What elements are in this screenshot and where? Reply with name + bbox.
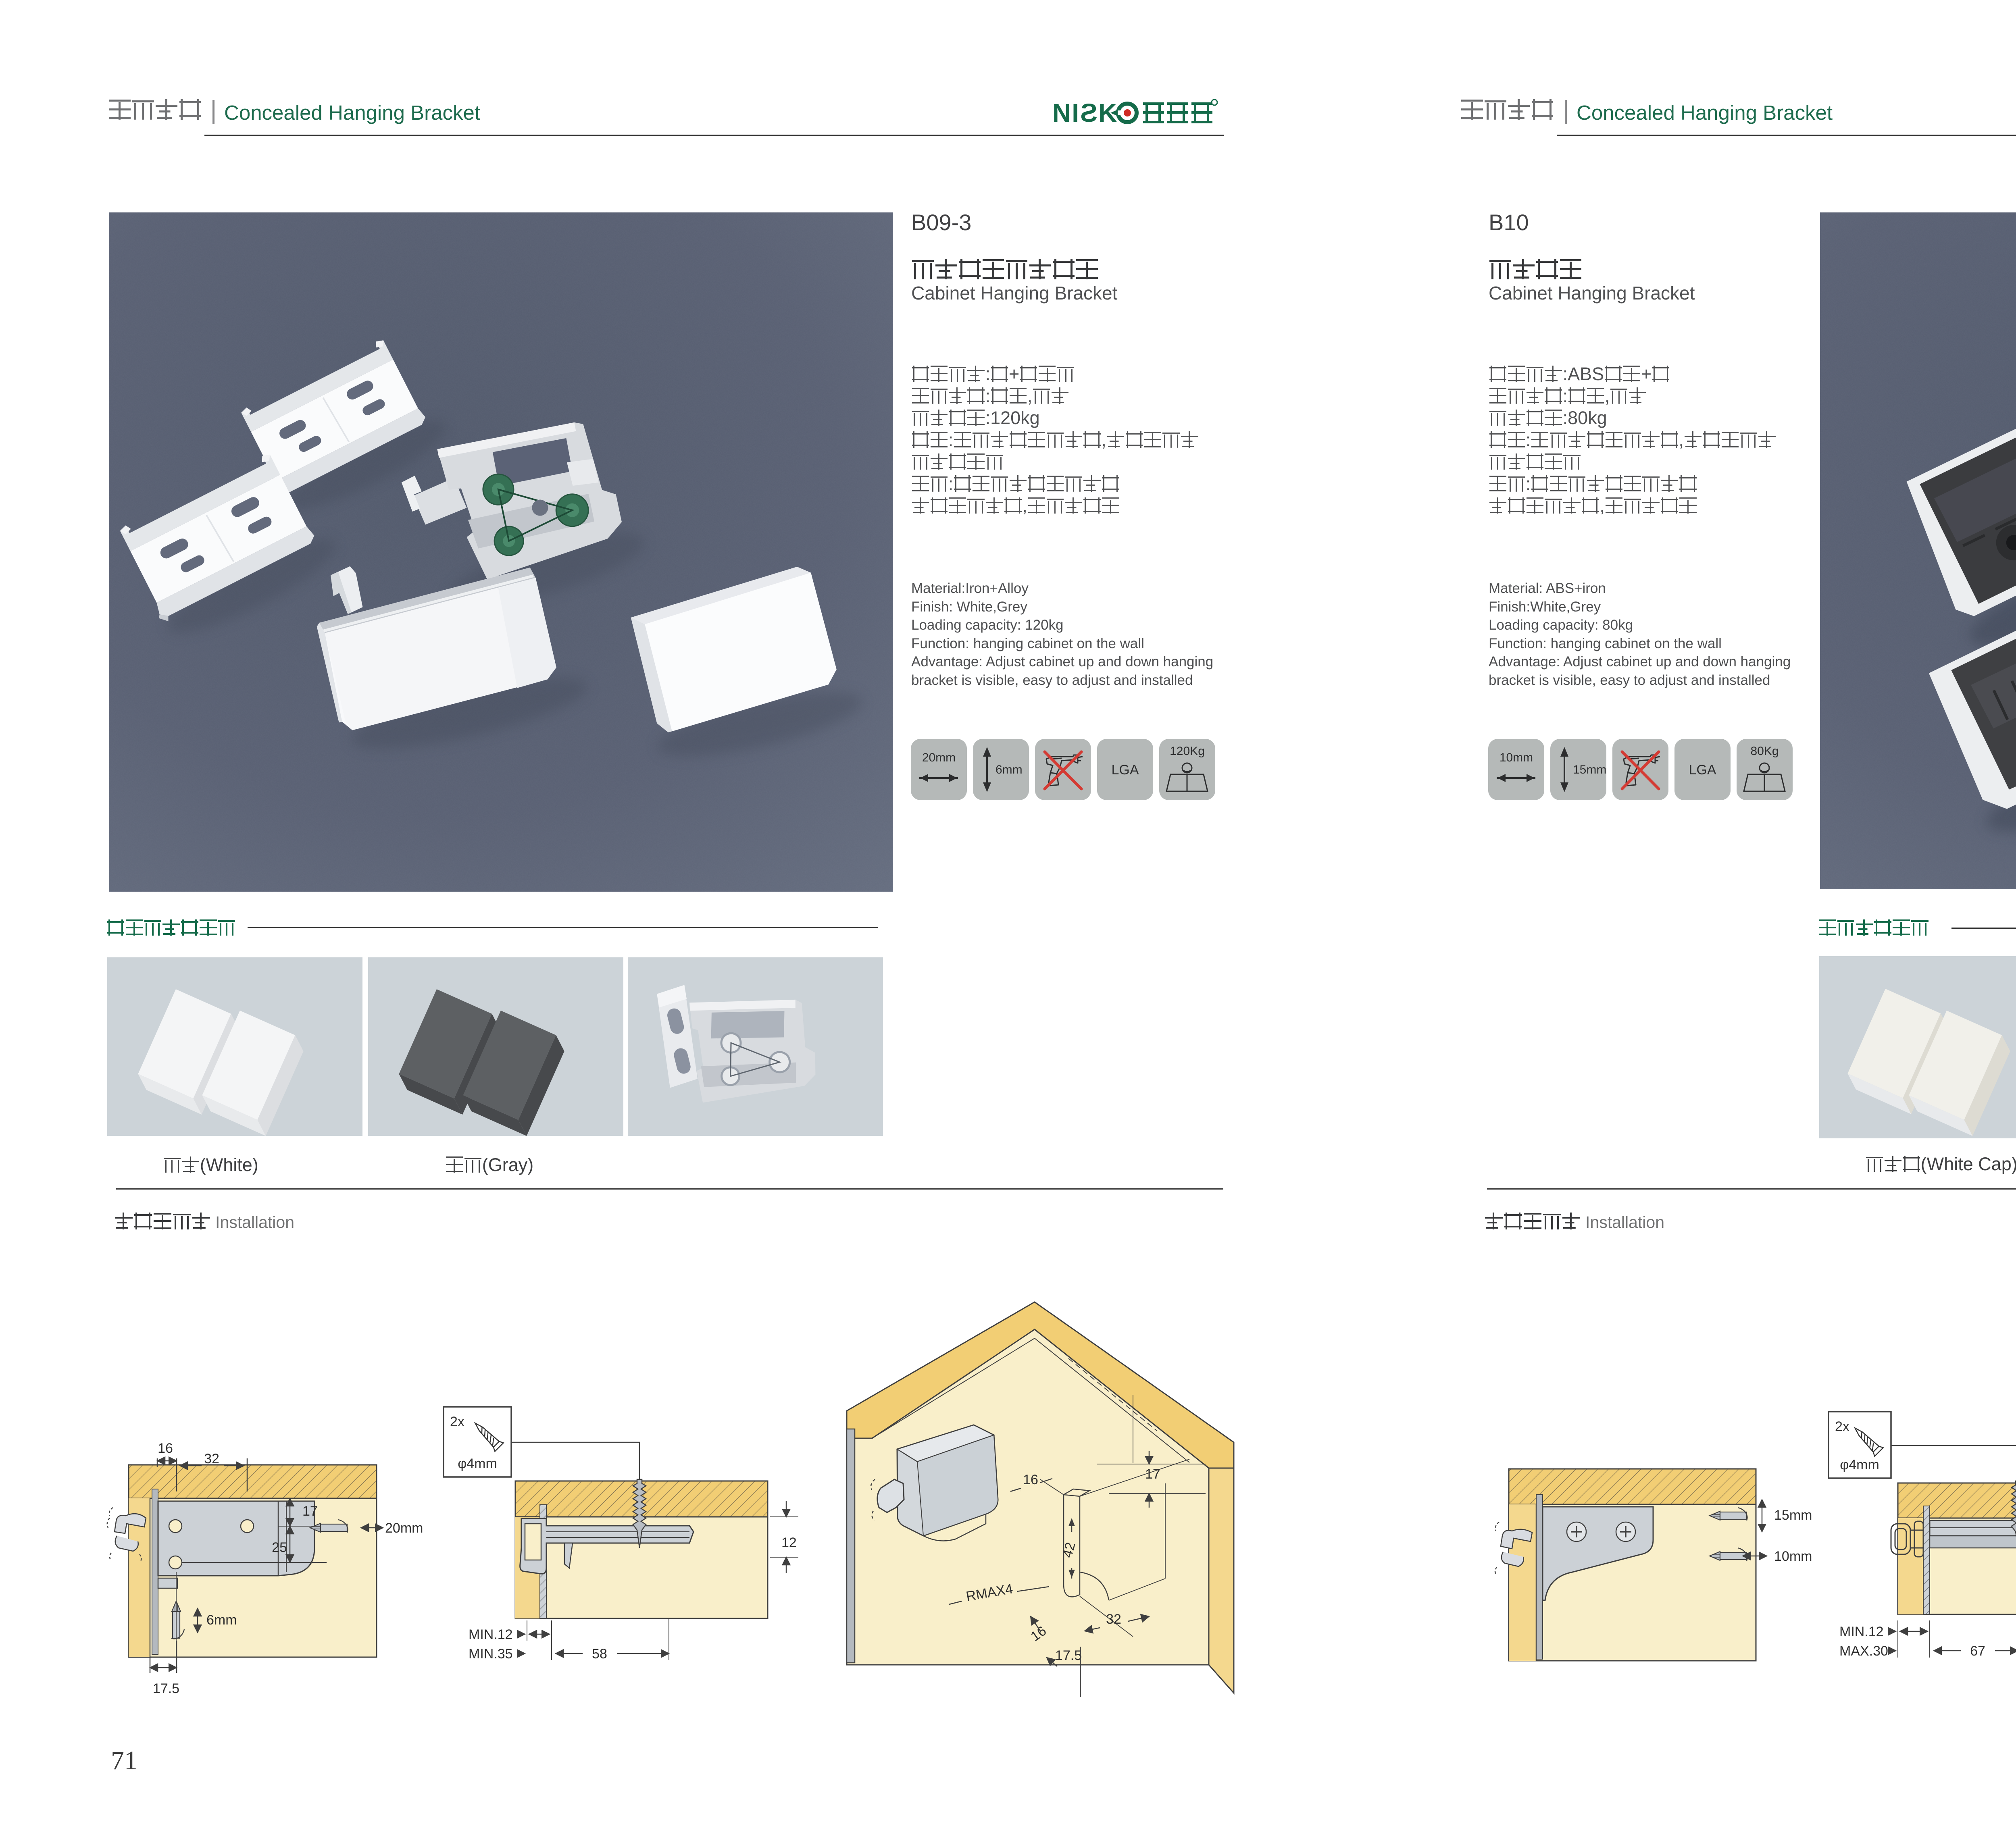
svg-text:S: S xyxy=(1080,98,1098,127)
svg-text:φ4mm: φ4mm xyxy=(458,1456,497,1471)
svg-text:MAX.30: MAX.30 xyxy=(1839,1643,1888,1659)
svg-text:12: 12 xyxy=(781,1535,797,1550)
svg-text:32: 32 xyxy=(204,1451,219,1466)
svg-text:φ4mm: φ4mm xyxy=(1840,1457,1879,1473)
svg-text:17: 17 xyxy=(1145,1466,1160,1482)
svg-text:32: 32 xyxy=(1106,1612,1121,1627)
svg-text:MIN.12: MIN.12 xyxy=(469,1627,513,1642)
svg-text:17.5: 17.5 xyxy=(1055,1648,1082,1663)
svg-text:MIN.12: MIN.12 xyxy=(1839,1624,1884,1639)
svg-text:15mm: 15mm xyxy=(1774,1508,1812,1523)
svg-text:16: 16 xyxy=(158,1441,173,1456)
svg-text:MIN.35: MIN.35 xyxy=(469,1646,513,1662)
svg-text:58: 58 xyxy=(592,1646,607,1662)
svg-text:17: 17 xyxy=(302,1504,318,1519)
svg-text:6mm: 6mm xyxy=(206,1612,237,1628)
svg-text:67: 67 xyxy=(1970,1643,1985,1659)
svg-text:2x: 2x xyxy=(450,1414,464,1429)
svg-text:2x: 2x xyxy=(1835,1419,1849,1434)
svg-text:25: 25 xyxy=(272,1540,287,1555)
svg-text:16: 16 xyxy=(1023,1472,1038,1487)
svg-text:20mm: 20mm xyxy=(385,1520,423,1536)
svg-text:17.5: 17.5 xyxy=(153,1681,179,1696)
svg-text:10mm: 10mm xyxy=(1774,1549,1812,1564)
svg-text:NI: NI xyxy=(1052,98,1080,127)
